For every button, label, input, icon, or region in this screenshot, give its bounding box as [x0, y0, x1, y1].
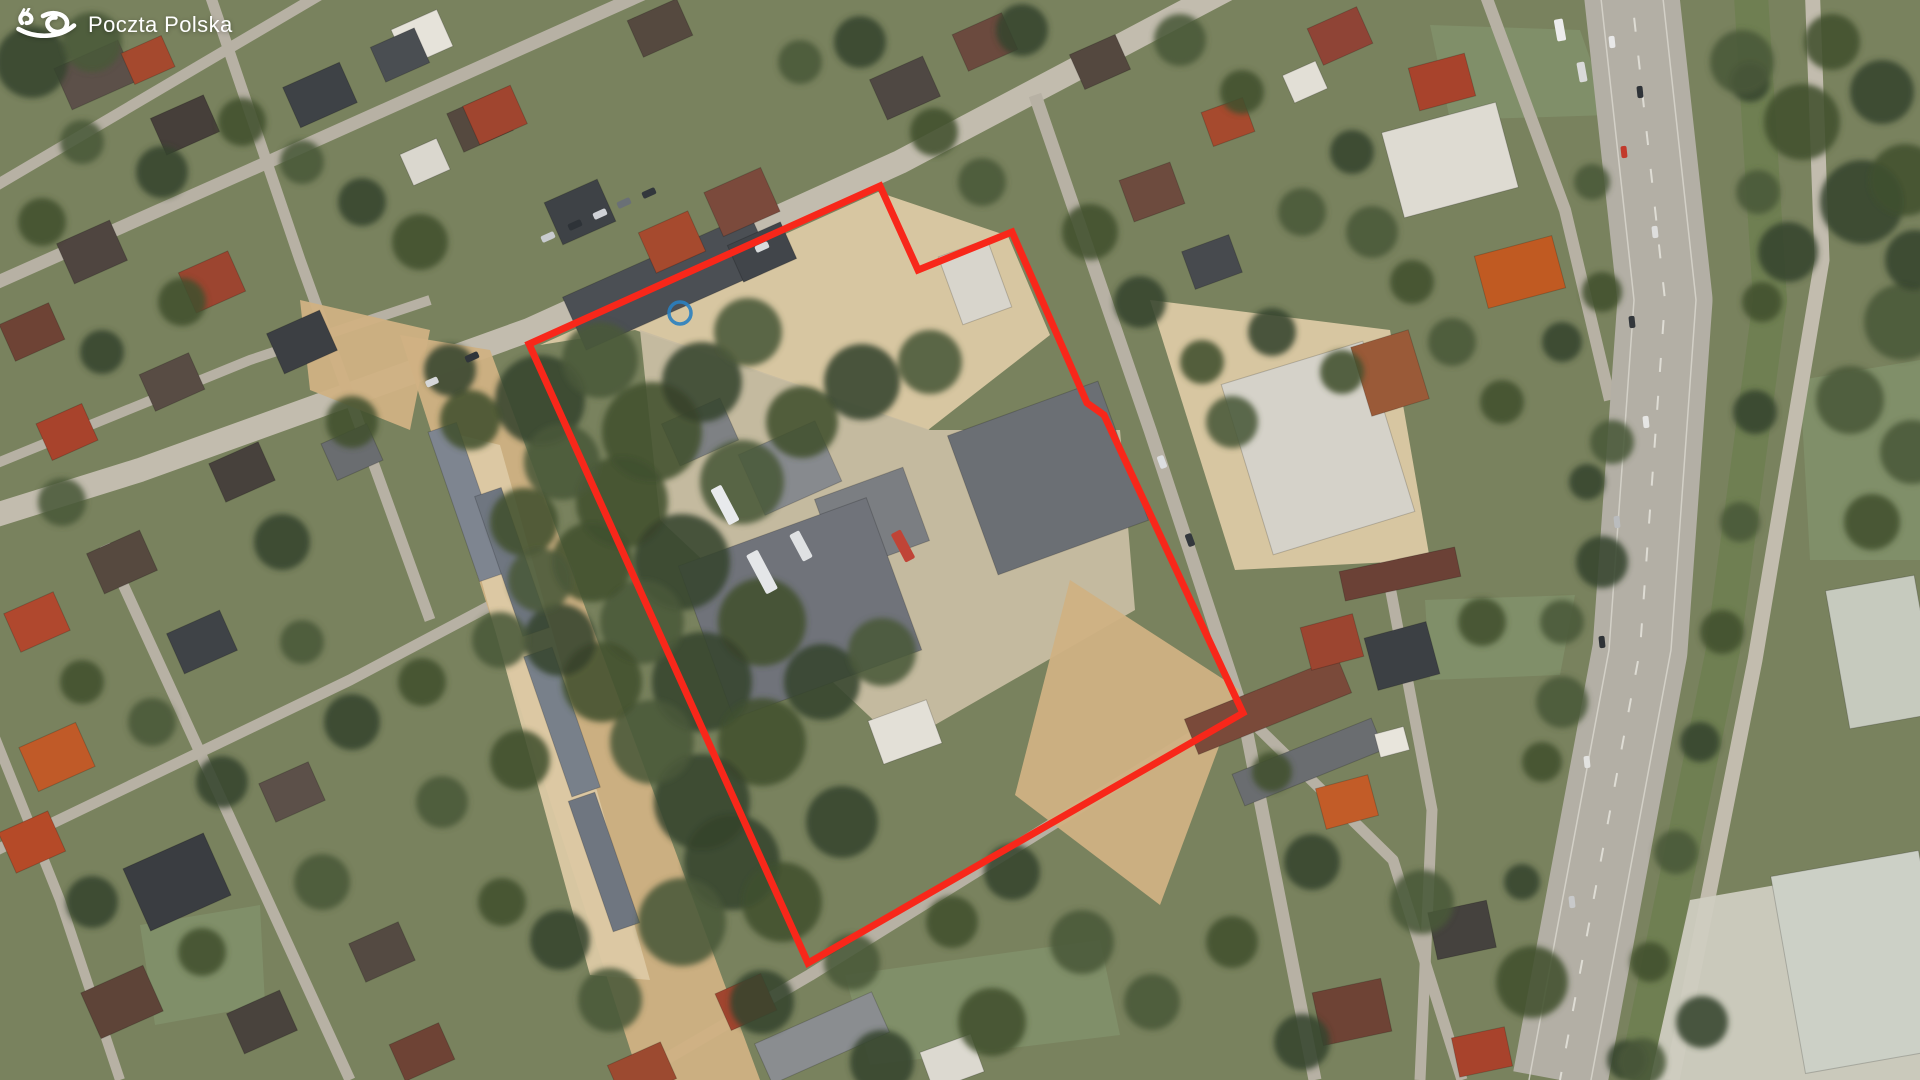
- map-view: Poczta Polska: [0, 0, 1920, 1080]
- satellite-map[interactable]: [0, 0, 1920, 1080]
